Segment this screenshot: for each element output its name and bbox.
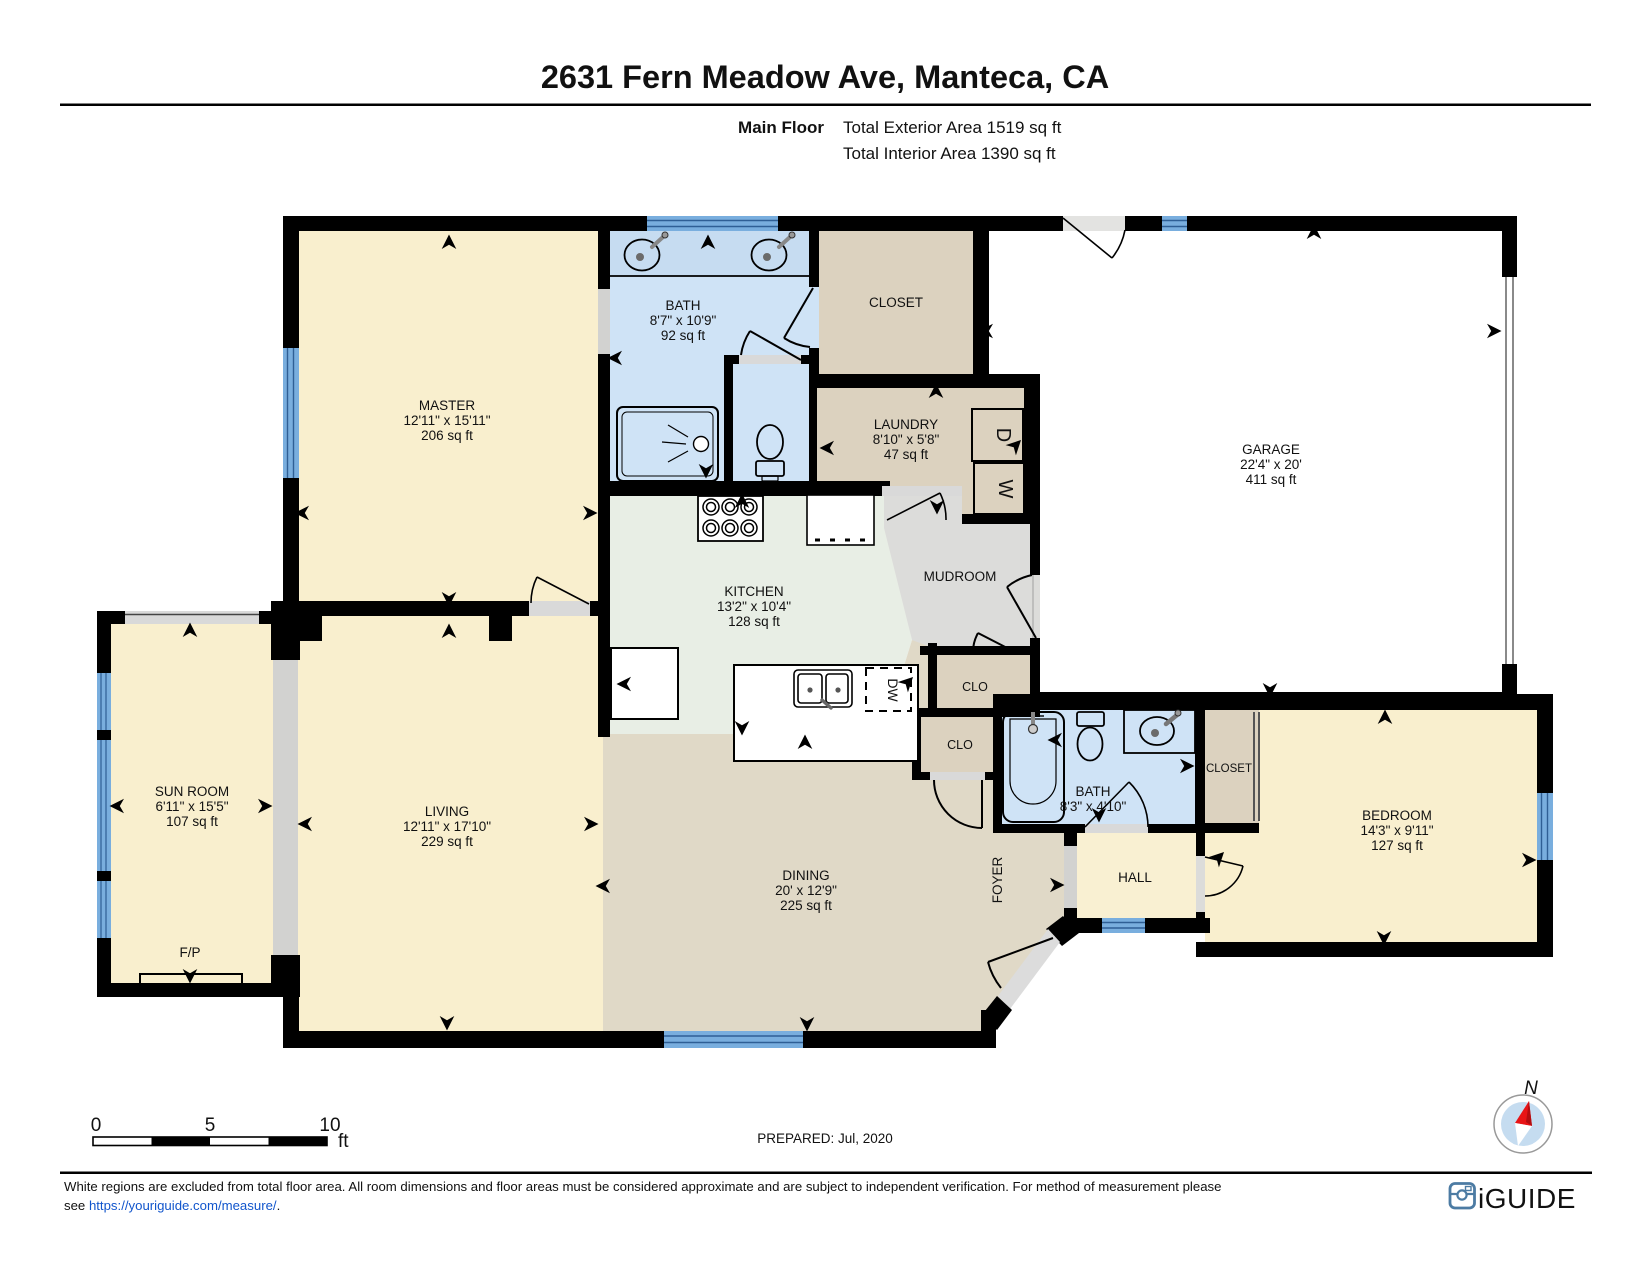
- svg-text:GARAGE: GARAGE: [1242, 442, 1300, 457]
- svg-text:D: D: [992, 428, 1014, 442]
- svg-text:14'3" x 9'11": 14'3" x 9'11": [1360, 823, 1433, 838]
- svg-text:CLO: CLO: [962, 680, 988, 694]
- svg-text:8'10" x 5'8": 8'10" x 5'8": [873, 432, 940, 447]
- svg-text:8'7" x 10'9": 8'7" x 10'9": [650, 313, 717, 328]
- svg-text:Main Floor: Main Floor: [738, 118, 824, 137]
- svg-text:225 sq ft: 225 sq ft: [780, 898, 832, 913]
- svg-text:CLO: CLO: [947, 738, 973, 752]
- svg-text:MUDROOM: MUDROOM: [924, 569, 997, 584]
- svg-text:BEDROOM: BEDROOM: [1362, 808, 1432, 823]
- svg-text:DINING: DINING: [782, 868, 829, 883]
- svg-text:6'11" x 15'5": 6'11" x 15'5": [155, 799, 228, 814]
- svg-text:8'3" x 4'10": 8'3" x 4'10": [1060, 799, 1127, 814]
- svg-text:BATH: BATH: [665, 298, 700, 313]
- svg-text:see https://youriguide.com/mea: see https://youriguide.com/measure/.: [64, 1198, 280, 1213]
- svg-text:47 sq ft: 47 sq ft: [884, 447, 929, 462]
- svg-text:MASTER: MASTER: [419, 398, 476, 413]
- svg-text:127 sq ft: 127 sq ft: [1371, 838, 1423, 853]
- svg-text:107 sq ft: 107 sq ft: [166, 814, 218, 829]
- svg-text:128 sq ft: 128 sq ft: [728, 614, 780, 629]
- svg-text:SUN ROOM: SUN ROOM: [155, 784, 229, 799]
- svg-text:W: W: [994, 480, 1016, 499]
- svg-text:20' x 12'9": 20' x 12'9": [775, 883, 837, 898]
- svg-text:iGUIDE: iGUIDE: [1478, 1183, 1576, 1214]
- svg-text:206 sq ft: 206 sq ft: [421, 428, 473, 443]
- svg-text:LAUNDRY: LAUNDRY: [874, 417, 938, 432]
- svg-text:229 sq ft: 229 sq ft: [421, 834, 473, 849]
- svg-text:0: 0: [91, 1115, 102, 1136]
- svg-text:KITCHEN: KITCHEN: [724, 584, 783, 599]
- svg-text:13'2" x 10'4": 13'2" x 10'4": [717, 599, 791, 614]
- svg-text:HALL: HALL: [1118, 870, 1152, 885]
- svg-text:N: N: [1524, 1078, 1538, 1099]
- svg-text:92 sq ft: 92 sq ft: [661, 328, 706, 343]
- svg-text:White regions are excluded fro: White regions are excluded from total fl…: [64, 1179, 1221, 1194]
- svg-text:CLOSET: CLOSET: [869, 295, 923, 310]
- svg-text:5: 5: [205, 1115, 216, 1136]
- svg-text:F/P: F/P: [179, 945, 200, 960]
- svg-text:ft: ft: [338, 1131, 349, 1152]
- svg-text:2631 Fern Meadow Ave, Manteca,: 2631 Fern Meadow Ave, Manteca, CA: [541, 59, 1109, 95]
- svg-text:BATH: BATH: [1075, 784, 1110, 799]
- svg-text:12'11" x 15'11": 12'11" x 15'11": [403, 413, 490, 428]
- svg-text:FOYER: FOYER: [990, 857, 1005, 904]
- svg-text:Total Exterior Area 1519 sq ft: Total Exterior Area 1519 sq ft: [843, 118, 1062, 137]
- svg-text:DW: DW: [885, 678, 901, 702]
- svg-text:PREPARED: Jul, 2020: PREPARED: Jul, 2020: [757, 1131, 893, 1146]
- svg-text:Total Interior Area 1390 sq ft: Total Interior Area 1390 sq ft: [843, 144, 1056, 163]
- svg-text:12'11" x 17'10": 12'11" x 17'10": [403, 819, 491, 834]
- svg-text:22'4" x 20': 22'4" x 20': [1240, 457, 1302, 472]
- svg-text:LIVING: LIVING: [425, 804, 469, 819]
- svg-text:CLOSET: CLOSET: [1206, 763, 1252, 775]
- svg-text:411 sq ft: 411 sq ft: [1246, 472, 1297, 487]
